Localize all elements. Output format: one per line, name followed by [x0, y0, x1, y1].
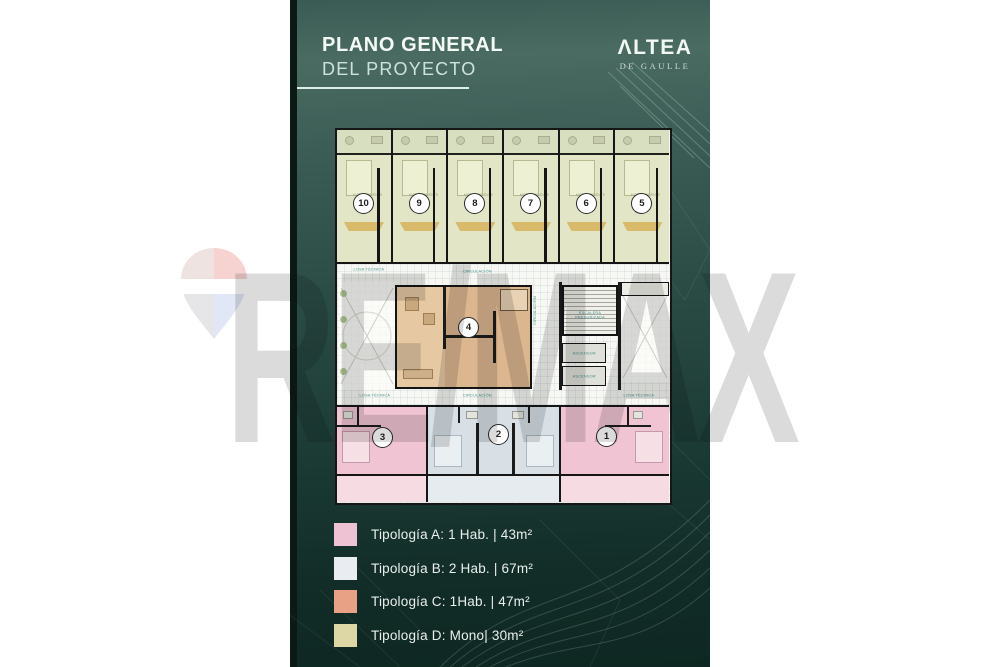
bathroom-strip — [337, 130, 391, 155]
flyer-panel: PLANO GENERAL DEL PROYECTO ΛLTEA DE GAUL… — [290, 0, 710, 667]
terrace-left — [339, 282, 395, 390]
terrace-right — [621, 292, 669, 382]
bathroom-strip — [393, 130, 447, 155]
altea-logo: ΛLTEA DE GAULLE — [612, 37, 698, 71]
wall — [489, 168, 492, 262]
unit-5: MONOAMBIENTE 5 — [613, 130, 669, 262]
balcony — [561, 474, 669, 502]
bathroom-strip — [560, 130, 614, 155]
unit-number-badge: 2 — [488, 424, 509, 445]
elevator-1: ASCENSOR — [562, 343, 606, 363]
legend-item-a: Tipología A: 1 Hab. | 43m² — [334, 523, 532, 546]
legend-label-b: Tipología B: 2 Hab. | 67m² — [371, 561, 533, 576]
wall — [656, 168, 659, 262]
top-unit-row: MONOAMBIENTE 10 MONOAMBIENTE 9 — [337, 130, 669, 264]
unit-number-badge: 5 — [631, 193, 652, 214]
unit-9: MONOAMBIENTE 9 — [391, 130, 447, 262]
bed — [526, 435, 554, 467]
unit-10: MONOAMBIENTE 10 — [337, 130, 391, 262]
unit-number-badge: 9 — [409, 193, 430, 214]
legend-label-d: Tipología D: Mono| 30m² — [371, 628, 523, 643]
remax-balloon-icon — [172, 242, 256, 342]
legend-label-a: Tipología A: 1 Hab. | 43m² — [371, 527, 532, 542]
hatch-pattern — [621, 292, 669, 382]
losa-tecnica-label-right: LOSA TÉCNICA — [609, 392, 669, 399]
page-title-line1: PLANO GENERAL — [322, 34, 503, 57]
elevator-2: ASCENSOR — [562, 366, 606, 386]
unit-number-badge: 4 — [458, 317, 479, 338]
legend-swatch-d — [334, 624, 357, 647]
legend-swatch-a — [334, 523, 357, 546]
legend-item-b: Tipología B: 2 Hab. | 67m² — [334, 557, 533, 580]
wall — [377, 168, 380, 262]
unit-number-badge: 1 — [596, 426, 617, 447]
altea-logo-subtitle: DE GAULLE — [612, 61, 698, 71]
living-area — [397, 287, 445, 387]
bed — [635, 431, 663, 463]
page-background: RE/MAX — [0, 0, 1000, 667]
hatch-pattern — [339, 282, 395, 390]
bathroom-strip — [504, 130, 558, 155]
legend-item-d: Tipología D: Mono| 30m² — [334, 624, 523, 647]
bathroom-strip — [448, 130, 502, 155]
bathroom-strip — [615, 130, 669, 155]
wall — [600, 168, 603, 262]
bed — [342, 431, 370, 463]
unit-2: 2 — [426, 407, 559, 502]
losa-tecnica-label-left: LOSA TÉCNICA — [345, 392, 405, 399]
altea-logo-name: ΛLTEA — [612, 37, 698, 58]
wall — [433, 168, 436, 262]
stair-label: ESCALERAPRESURIZADA — [562, 308, 618, 323]
unit-3: 3 — [337, 407, 426, 502]
floor-plan: MONOAMBIENTE 10 MONOAMBIENTE 9 — [335, 128, 672, 505]
circulacion-label-vertical: CIRCULACIÓN — [533, 296, 537, 325]
balcony — [428, 474, 559, 502]
legend-label-c: Tipología C: 1Hab. | 47m² — [371, 594, 530, 609]
unit-1: 1 — [559, 407, 669, 502]
losa-tecnica-label-top: LOSA TÉCNICA — [339, 266, 399, 273]
unit-6: MONOAMBIENTE 6 — [558, 130, 614, 262]
unit-number-badge: 6 — [576, 193, 597, 214]
unit-number-badge: 10 — [353, 193, 374, 214]
unit-number-badge: 3 — [372, 427, 393, 448]
legend-swatch-c — [334, 590, 357, 613]
service-room — [621, 282, 669, 296]
balcony — [337, 474, 426, 502]
unit-number-badge: 8 — [464, 193, 485, 214]
title-underline — [297, 87, 469, 89]
legend-swatch-b — [334, 557, 357, 580]
unit-4: 4 — [395, 285, 532, 389]
circulacion-label-bottom: CIRCULACIÓN — [432, 392, 522, 399]
unit-7: MONOAMBIENTE 7 — [502, 130, 558, 262]
circulacion-label-top: CIRCULACIÓN — [427, 268, 527, 275]
bottom-unit-row: 3 2 — [337, 405, 669, 502]
page-title-line2: DEL PROYECTO — [322, 59, 476, 80]
legend-item-c: Tipología C: 1Hab. | 47m² — [334, 590, 530, 613]
bed — [434, 435, 462, 467]
wall — [544, 168, 547, 262]
unit-8: MONOAMBIENTE 8 — [446, 130, 502, 262]
unit-number-badge: 7 — [520, 193, 541, 214]
panel-left-border — [290, 0, 297, 667]
